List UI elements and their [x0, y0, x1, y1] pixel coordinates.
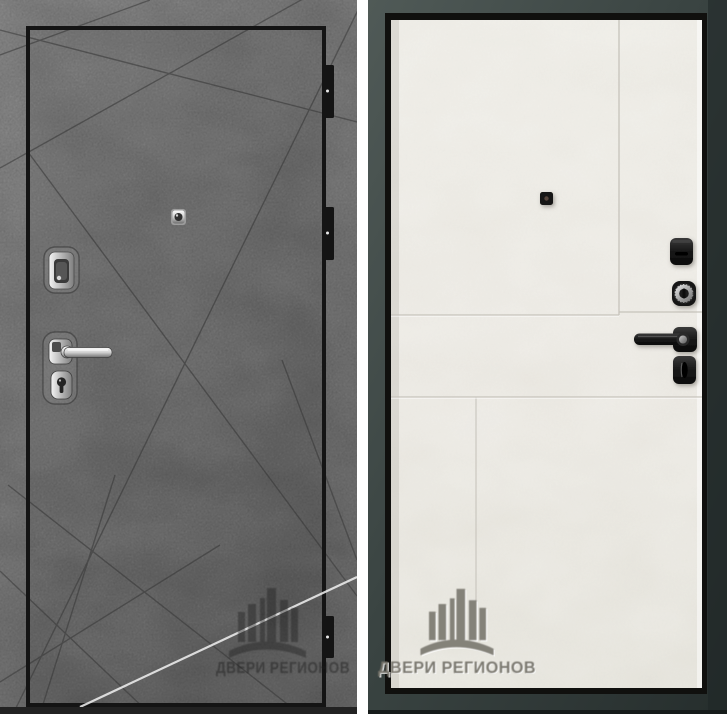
panel-right-highlight — [697, 20, 702, 688]
panel-left-shade — [391, 20, 399, 688]
key-cylinder — [672, 281, 696, 306]
door-interior-view: ДВЕРИ РЕГИОНОВ ДВЕРИ РЕГИОНОВ — [368, 0, 727, 714]
door-exterior-view: ДВЕРИ РЕГИОНОВ — [0, 0, 357, 714]
bottom-shadow — [0, 707, 357, 714]
thumbturn — [673, 356, 696, 384]
watermark-text: ДВЕРИ РЕГИОНОВ — [378, 658, 536, 677]
frame-right-shade — [708, 0, 727, 714]
upper-lock — [44, 247, 79, 293]
peephole — [171, 209, 186, 225]
frame-bottom-edge — [368, 710, 727, 714]
door-exterior-canvas: ДВЕРИ РЕГИОНОВ — [0, 0, 357, 714]
product-photo: ДВЕРИ РЕГИОНОВ — [0, 0, 727, 714]
panel-grain — [391, 20, 702, 688]
peephole — [540, 192, 553, 205]
handle-lever — [64, 348, 112, 358]
door-interior-canvas: ДВЕРИ РЕГИОНОВ ДВЕРИ РЕГИОНОВ — [368, 0, 727, 714]
handle-lever — [634, 334, 684, 346]
key-cylinder — [51, 371, 72, 399]
night-latch — [670, 238, 693, 265]
watermark-text: ДВЕРИ РЕГИОНОВ — [216, 660, 350, 677]
